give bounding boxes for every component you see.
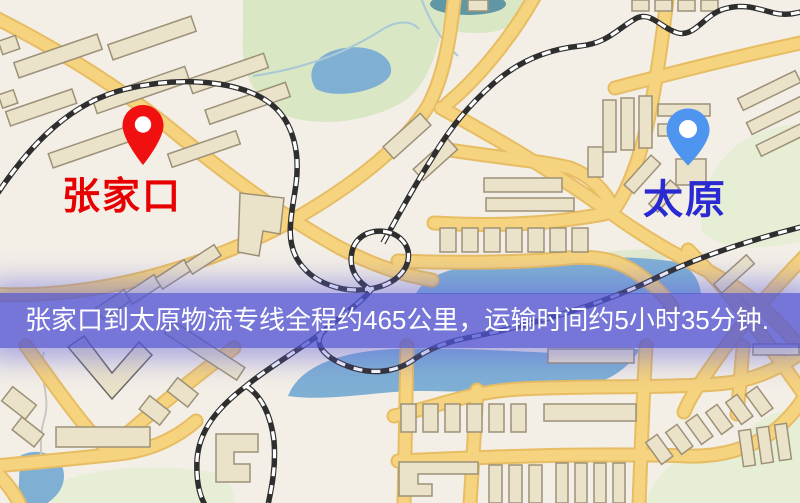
destination-label: 太原 — [643, 180, 727, 220]
route-info-banner: 张家口到太原物流专线全程约465公里，运输时间约5小时35分钟. — [0, 293, 800, 348]
destination-pin-icon[interactable] — [664, 106, 712, 173]
map-view[interactable]: 张家口 太原 张家口到太原物流专线全程约465公里，运输时间约5小时35分钟. — [0, 0, 800, 503]
route-info-text: 张家口到太原物流专线全程约465公里，运输时间约5小时35分钟. — [0, 293, 800, 348]
origin-label: 张家口 — [62, 178, 182, 216]
map-canvas[interactable] — [0, 0, 800, 503]
origin-pin-icon[interactable] — [120, 102, 166, 173]
